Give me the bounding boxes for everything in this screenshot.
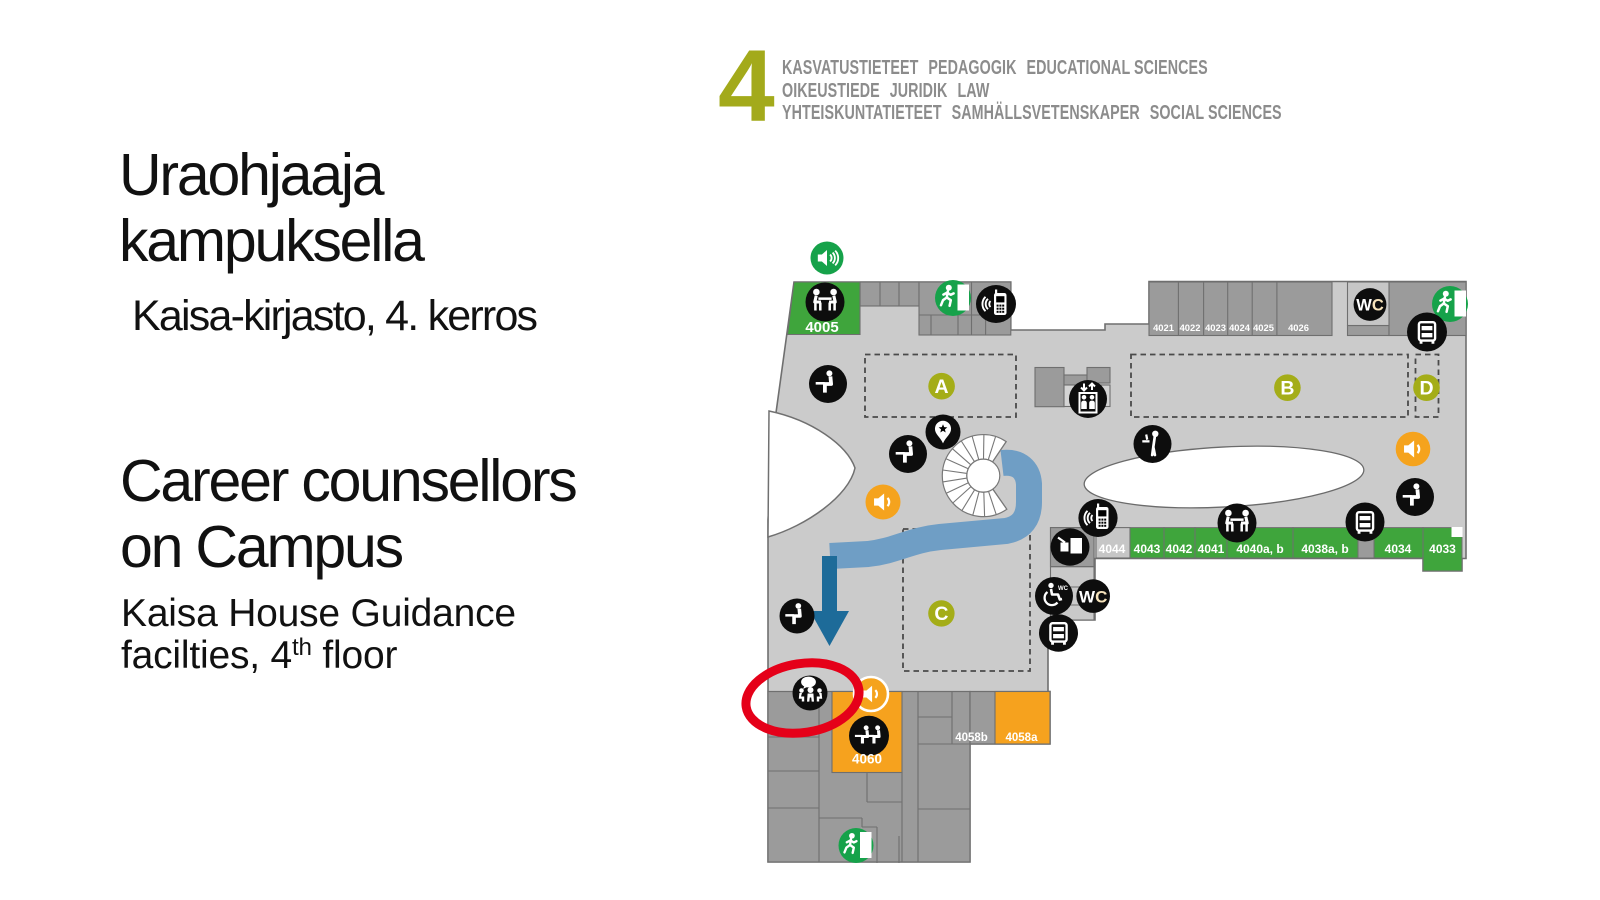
svg-text:4022: 4022 bbox=[1180, 322, 1201, 333]
svg-text:4038a, b: 4038a, b bbox=[1301, 542, 1348, 556]
svg-text:D: D bbox=[1419, 378, 1433, 400]
svg-text:4043: 4043 bbox=[1134, 542, 1161, 556]
svg-text:4021: 4021 bbox=[1153, 322, 1174, 333]
svg-text:4025: 4025 bbox=[1253, 322, 1274, 333]
svg-text:4005: 4005 bbox=[805, 319, 838, 336]
svg-text:4034: 4034 bbox=[1385, 542, 1412, 556]
svg-text:4058a: 4058a bbox=[1006, 732, 1039, 744]
svg-text:A: A bbox=[935, 376, 949, 398]
svg-text:B: B bbox=[1280, 378, 1294, 400]
svg-text:WC: WC bbox=[1079, 587, 1107, 606]
svg-text:4033: 4033 bbox=[1429, 542, 1456, 556]
svg-text:WC: WC bbox=[1356, 297, 1384, 315]
svg-text:4060: 4060 bbox=[852, 752, 882, 767]
svg-text:4041: 4041 bbox=[1198, 542, 1225, 556]
svg-text:C: C bbox=[934, 603, 948, 625]
svg-text:4040a, b: 4040a, b bbox=[1236, 542, 1283, 556]
svg-text:4042: 4042 bbox=[1166, 542, 1193, 556]
svg-text:4026: 4026 bbox=[1288, 322, 1309, 333]
svg-text:4024: 4024 bbox=[1229, 322, 1251, 333]
svg-text:4058b: 4058b bbox=[955, 732, 988, 744]
svg-text:4044: 4044 bbox=[1099, 542, 1126, 556]
svg-text:4023: 4023 bbox=[1205, 322, 1226, 333]
